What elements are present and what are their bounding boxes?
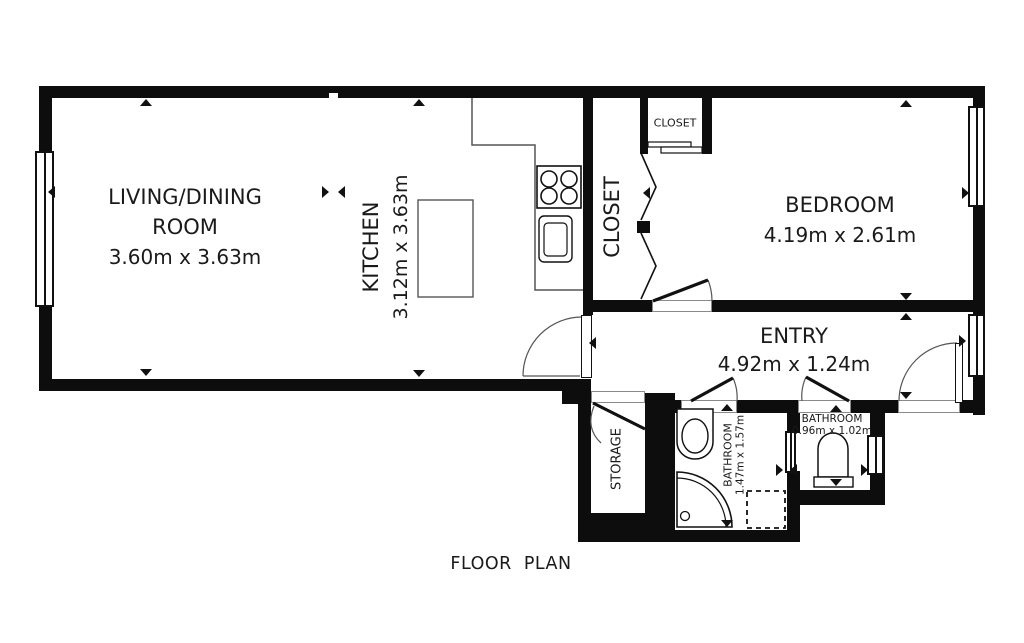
window-icon	[35, 151, 54, 307]
toilet-icon	[677, 409, 713, 459]
room-dims: 4.92m x 1.24m	[718, 350, 871, 378]
room-name: ENTRY	[718, 322, 871, 350]
storage-label: STORAGE	[610, 428, 625, 490]
measure-arrow-up-icon	[413, 99, 425, 106]
room-dims: 1.47m x 1.57m	[735, 415, 747, 495]
measure-arrow-right-icon	[776, 464, 783, 476]
closet-small-label: CLOSET	[654, 117, 697, 130]
measure-arrow-up-icon	[721, 404, 733, 411]
floor-plan: LIVING/DINING ROOM 3.60m x 3.63m KITCHEN…	[0, 0, 1024, 643]
measure-arrow-down-icon	[721, 520, 733, 527]
measure-arrow-left-icon	[643, 187, 650, 199]
window-icon	[968, 106, 985, 207]
room-name: LIVING/DINING	[108, 182, 262, 212]
room-name: CLOSET	[597, 176, 627, 258]
bathroom-main-door-swing-icon	[691, 378, 737, 401]
measure-arrow-left-icon	[338, 186, 345, 198]
sink-icon	[539, 216, 572, 262]
room-name: KITCHEN	[356, 175, 386, 320]
fixtures-layer	[0, 0, 1024, 643]
measure-arrow-right-icon	[861, 464, 868, 476]
measure-arrow-right-icon	[322, 186, 329, 198]
measure-arrow-down-icon	[140, 369, 152, 376]
measure-arrow-up-icon	[830, 405, 842, 412]
entry-label: ENTRY 4.92m x 1.24m	[718, 322, 871, 378]
bathroom-small-door-swing-icon	[802, 377, 849, 401]
measure-arrow-left-icon	[589, 337, 596, 349]
room-dims: 4.19m x 2.61m	[764, 220, 917, 250]
room-name: ROOM	[108, 212, 262, 242]
room-name: BEDROOM	[764, 190, 917, 220]
measure-arrow-down-icon	[900, 392, 912, 399]
plan-title: FLOOR PLAN	[450, 554, 571, 574]
measure-arrow-down-icon	[830, 479, 842, 486]
bedroom-label: BEDROOM 4.19m x 2.61m	[764, 190, 917, 250]
kitchen-island-icon	[418, 200, 473, 297]
room-dims: 3.12m x 3.63m	[386, 175, 416, 320]
bathroom-small-label: BATHROOM 0.96m x 1.02m	[792, 413, 872, 437]
appliance-space-dashed-box	[747, 491, 785, 528]
room-dims: 0.96m x 1.02m	[792, 425, 872, 437]
window-icon	[968, 314, 985, 377]
bathroom-main-label: BATHROOM 1.47m x 1.57m	[722, 415, 747, 495]
measure-arrow-right-icon	[962, 187, 969, 199]
room-name: BATHROOM	[792, 413, 872, 425]
entry-door-leaf-icon	[955, 343, 963, 403]
room-name: BATHROOM	[722, 415, 735, 495]
room-dims: 3.60m x 3.63m	[108, 242, 262, 272]
measure-arrow-down-icon	[413, 370, 425, 377]
kitchen-door-swing-icon	[523, 317, 582, 376]
closet-label: CLOSET	[597, 176, 627, 258]
measure-arrow-up-icon	[140, 99, 152, 106]
room-name: CLOSET	[654, 117, 697, 130]
measure-arrow-up-icon	[900, 313, 912, 320]
measure-arrow-left-icon	[790, 464, 797, 476]
room-name: STORAGE	[610, 428, 625, 490]
measure-arrow-up-icon	[900, 100, 912, 107]
bedroom-door-swing-icon	[653, 280, 712, 301]
sliding-door-icon	[648, 142, 702, 153]
living-room-label: LIVING/DINING ROOM 3.60m x 3.63m	[108, 182, 262, 272]
measure-arrow-left-icon	[48, 186, 55, 198]
measure-arrow-right-icon	[959, 335, 966, 347]
kitchen-label: KITCHEN 3.12m x 3.63m	[356, 175, 416, 320]
window-icon	[867, 435, 884, 475]
measure-arrow-down-icon	[900, 293, 912, 300]
stove-icon	[537, 166, 581, 208]
bifold-door-icon	[641, 153, 656, 299]
